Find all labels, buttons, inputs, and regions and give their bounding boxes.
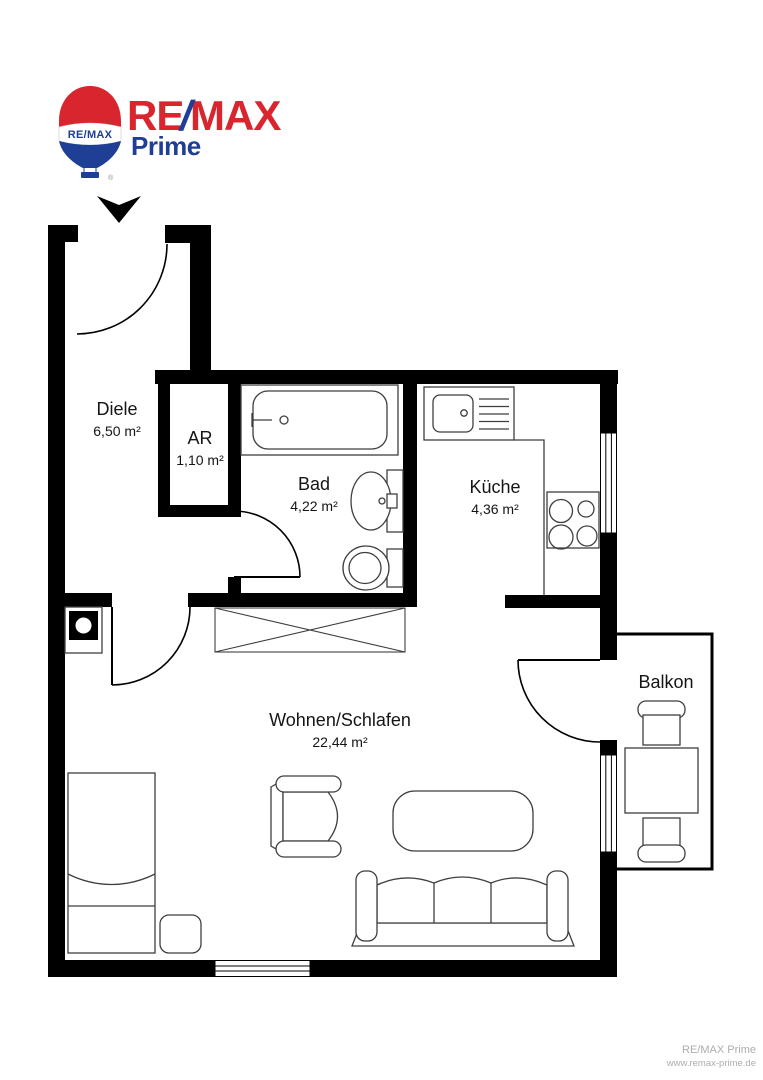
room-label-kueche: Küche 4,36 m² — [425, 477, 565, 517]
room-name: Diele — [57, 399, 177, 420]
room-label-bad: Bad 4,22 m² — [254, 474, 374, 514]
armchair-icon — [271, 776, 341, 857]
shaft-icon — [65, 607, 102, 653]
room-label-ar: AR 1,10 m² — [159, 428, 241, 468]
balcony-chair-bottom-icon — [638, 818, 685, 862]
entrance-arrow-icon — [97, 196, 141, 223]
entrance-door-swing — [77, 244, 167, 334]
room-name: Balkon — [616, 672, 716, 693]
room-label-wohnen-schlafen: Wohnen/Schlafen 22,44 m² — [240, 710, 440, 750]
coffee-table-icon — [393, 791, 533, 851]
watermark-brand: RE/MAX Prime — [667, 1044, 756, 1058]
window-living-icon — [601, 755, 617, 852]
watermark-url: www.remax-prime.de — [667, 1058, 756, 1070]
floorplan-page: RE/MAX ® RE/MAX Prime — [0, 0, 763, 1080]
toilet-icon — [343, 546, 403, 590]
balcony-chair-top-icon — [638, 701, 685, 745]
kitchen-counter-line — [514, 440, 544, 595]
room-name: Küche — [425, 477, 565, 498]
balcony-table-icon — [625, 748, 698, 813]
kitchen-sink-icon — [424, 387, 514, 440]
room-area: 4,36 m² — [425, 501, 565, 517]
window-kitchen-icon — [601, 433, 617, 533]
balcony-door-swing — [518, 660, 600, 742]
room-label-balkon: Balkon — [616, 672, 716, 693]
bed-icon — [68, 773, 155, 953]
watermark: RE/MAX Prime www.remax-prime.de — [667, 1044, 756, 1070]
floor-plan — [0, 0, 763, 1080]
sofa-icon — [352, 871, 574, 946]
window-bottom-icon — [215, 961, 310, 977]
room-area: 1,10 m² — [159, 452, 241, 468]
room-name: Wohnen/Schlafen — [240, 710, 440, 731]
room-area: 4,22 m² — [254, 498, 374, 514]
nightstand-icon — [160, 915, 201, 953]
bath-door-swing — [234, 511, 300, 577]
wardrobe-icon — [215, 608, 405, 652]
room-name: Bad — [254, 474, 374, 495]
room-name: AR — [159, 428, 241, 449]
living-door-swing — [112, 607, 190, 685]
bathtub-icon — [241, 385, 398, 455]
room-area: 22,44 m² — [240, 734, 440, 750]
